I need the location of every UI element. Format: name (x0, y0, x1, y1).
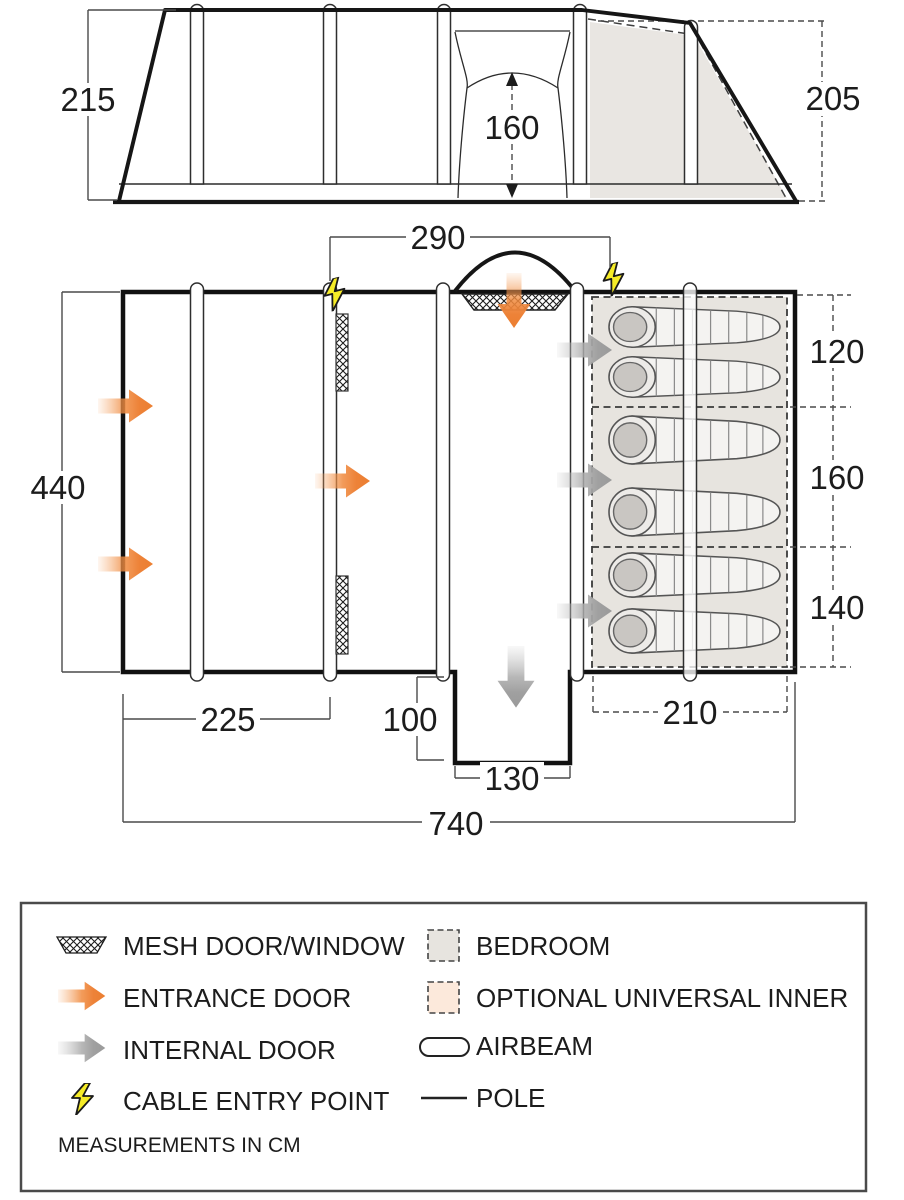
side-airbeam-1 (191, 5, 204, 185)
legend-entrance-label: ENTRANCE DOOR (123, 983, 351, 1013)
total-length-label: 740 (428, 805, 483, 842)
side-airbeam-5 (685, 21, 698, 185)
dim-depth: 440 (26, 292, 120, 672)
legend: MESH DOOR/WINDOW ENTRANCE DOOR INTERNAL … (21, 903, 866, 1191)
side-height-right-label: 205 (805, 80, 860, 117)
airbeam-1 (191, 283, 204, 681)
airbeam-3 (437, 283, 450, 681)
bedroom-swatch-icon (428, 930, 459, 961)
mesh-swatch-icon (57, 937, 106, 953)
depth-label: 440 (30, 469, 85, 506)
airbeam-capsule-icon (420, 1038, 469, 1056)
measurements-note: MEASUREMENTS IN CM (58, 1134, 301, 1157)
dim-bedroom-depth: 210 (593, 676, 787, 731)
legend-bedroom-label: BEDROOM (476, 931, 610, 961)
legend-airbeam-label: AIRBEAM (476, 1031, 593, 1061)
mesh-divider-window-bottom (336, 576, 348, 654)
tent-side-view: 160 215 205 (56, 5, 867, 203)
bedroom-3-width-label: 140 (809, 589, 864, 626)
mesh-divider-window-top (336, 314, 348, 391)
dim-side-height-right: 205 (799, 80, 867, 117)
bedroom-2-width-label: 160 (809, 459, 864, 496)
legend-inner-label: OPTIONAL UNIVERSAL INNER (476, 983, 848, 1013)
legend-pole-label: POLE (476, 1083, 545, 1113)
side-airbeam-3 (438, 5, 451, 185)
bedroom-1-width-label: 120 (809, 333, 864, 370)
living-length-label: 225 (200, 701, 255, 738)
side-airbeam-2 (324, 5, 337, 185)
door-height-label: 160 (484, 109, 539, 146)
dim-bedroom-sections: 120 160 140 (790, 295, 868, 667)
side-door: 160 (455, 31, 570, 198)
airbeam-5 (684, 283, 697, 681)
dim-porch-width: 130 (455, 760, 570, 797)
inner-swatch-icon (428, 982, 459, 1013)
porch-width-label: 130 (484, 760, 539, 797)
side-height-left-label: 215 (60, 81, 115, 118)
tent-floorplan-diagram: 160 215 205 (0, 0, 904, 1200)
side-airbeam-4 (574, 5, 587, 185)
bedroom-depth-label: 210 (662, 694, 717, 731)
tent-floor-plan: 290 440 120 160 140 225 100 (26, 219, 868, 842)
dim-porch-depth: 100 (380, 677, 444, 760)
legend-cable-label: CABLE ENTRY POINT (123, 1086, 389, 1116)
porch-depth-label: 100 (382, 701, 437, 738)
front-width-label: 290 (410, 219, 465, 256)
legend-internal-label: INTERNAL DOOR (123, 1035, 336, 1065)
dim-living-length: 225 (123, 697, 330, 738)
diagram-canvas: 160 215 205 (0, 0, 904, 1200)
legend-mesh-label: MESH DOOR/WINDOW (123, 931, 405, 961)
